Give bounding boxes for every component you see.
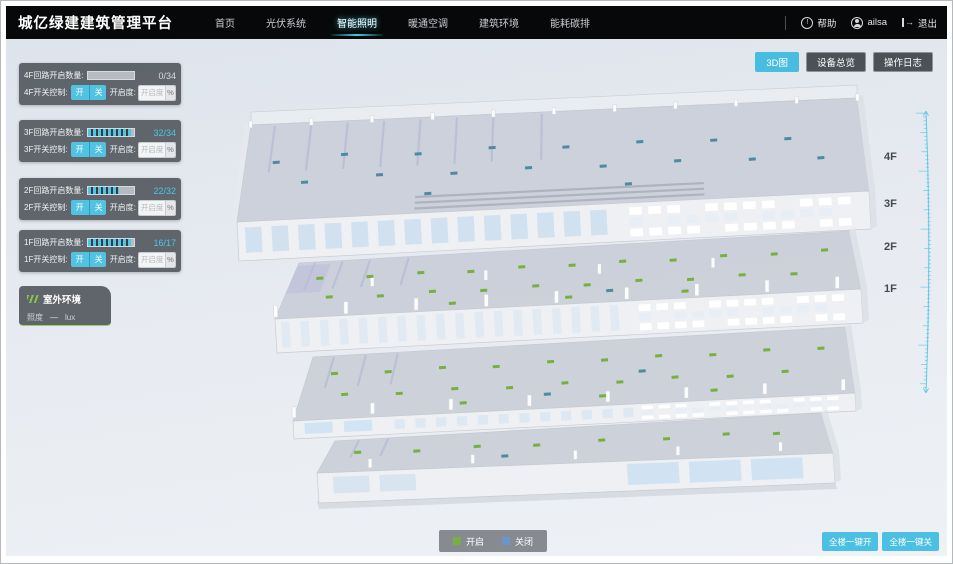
dim-input[interactable] <box>139 86 165 100</box>
dim-input-group: % <box>138 85 176 101</box>
floor-panel-2f: 2F回路开启数量: 22/32 2F开关控制: 开 关 开启度: % <box>19 178 181 220</box>
floor-label-2f: 2F <box>884 241 897 253</box>
dim-label: 开启度: <box>110 87 136 98</box>
switch-control-label: 4F开关控制: <box>24 87 68 98</box>
percent-button[interactable]: % <box>165 143 175 157</box>
off-button[interactable]: 关 <box>89 252 106 267</box>
app-title: 城亿绿建建筑管理平台 <box>18 12 173 33</box>
divider <box>785 16 786 30</box>
nav-item-lighting[interactable]: 智能照明 <box>335 11 379 34</box>
floor-label-1f: 1F <box>884 283 897 295</box>
percent-button[interactable]: % <box>165 201 175 215</box>
floor-label-4f: 4F <box>884 151 897 163</box>
dim-input[interactable] <box>139 253 165 267</box>
switch-control-label: 2F开关控制: <box>24 202 68 213</box>
switch-control-label: 3F开关控制: <box>24 144 68 155</box>
circuit-count-label: 2F回路开启数量: <box>24 185 84 196</box>
percent-button[interactable]: % <box>165 86 175 100</box>
nav-item-env[interactable]: 建筑环境 <box>477 11 521 34</box>
help-label: 帮助 <box>817 16 836 30</box>
operation-log-button[interactable]: 操作日志 <box>873 52 933 72</box>
nav-item-carbon[interactable]: 能耗碳排 <box>548 11 592 34</box>
circuit-count-label: 1F回路开启数量: <box>24 237 84 248</box>
dim-input-group: % <box>138 142 176 158</box>
circuit-progress-bar <box>87 71 135 80</box>
zoom-scale-ruler[interactable] <box>915 107 937 397</box>
legend-on-swatch <box>453 537 461 545</box>
floor-label-3f: 3F <box>884 198 897 210</box>
dim-input[interactable] <box>139 201 165 215</box>
illuminance-unit: lux <box>65 313 75 322</box>
view-toolbar: 3D图 设备总览 操作日志 <box>755 52 933 72</box>
app-window: 城亿绿建建筑管理平台 首页 光伏系统 智能照明 暖通空调 建筑环境 能耗碳排 !… <box>0 0 953 564</box>
outdoor-env-icon <box>27 295 39 303</box>
floor-panel-3f: 3F回路开启数量: 32/34 3F开关控制: 开 关 开启度: % <box>19 120 181 162</box>
all-off-button[interactable]: 全楼一键关 <box>882 532 939 551</box>
dim-label: 开启度: <box>110 202 136 213</box>
on-button[interactable]: 开 <box>71 252 89 267</box>
light-state-legend: 开启 关闭 <box>439 530 547 552</box>
logout-button[interactable]: → 退出 <box>902 16 937 30</box>
circuit-count-label: 4F回路开启数量: <box>24 70 84 81</box>
legend-off-label: 关闭 <box>515 535 533 548</box>
off-button[interactable]: 关 <box>89 85 106 100</box>
off-button[interactable]: 关 <box>89 200 106 215</box>
outdoor-env-title: 室外环境 <box>43 292 81 306</box>
help-icon: ! <box>801 17 813 29</box>
circuit-progress-bar <box>87 128 135 137</box>
circuit-count-label: 3F回路开启数量: <box>24 127 84 138</box>
circuit-progress-bar <box>87 186 135 195</box>
illuminance-label: 照度 <box>27 312 43 323</box>
username: ailsa <box>867 17 887 28</box>
illuminance-value: — <box>50 313 58 322</box>
percent-button[interactable]: % <box>165 253 175 267</box>
switch-group: 开 关 <box>71 142 106 157</box>
building-3d-view[interactable] <box>6 39 949 558</box>
on-button[interactable]: 开 <box>71 142 89 157</box>
on-button[interactable]: 开 <box>71 85 89 100</box>
dim-input[interactable] <box>139 143 165 157</box>
logout-label: 退出 <box>918 16 937 30</box>
floor-panel-4f: 4F回路开启数量: 0/34 4F开关控制: 开 关 开启度: % <box>19 63 181 105</box>
logout-icon: → <box>902 18 914 27</box>
user-icon <box>851 17 863 29</box>
user-menu[interactable]: ailsa <box>851 17 887 29</box>
circuit-count-value: 0/34 <box>158 71 176 81</box>
outdoor-env-panel: 室外环境 照度 — lux <box>19 286 111 326</box>
user-area: ! 帮助 ailsa → 退出 <box>785 16 937 30</box>
switch-group: 开 关 <box>71 252 106 267</box>
dim-label: 开启度: <box>110 144 136 155</box>
legend-on-label: 开启 <box>466 535 484 548</box>
nav-item-hvac[interactable]: 暖通空调 <box>406 11 450 34</box>
device-overview-button[interactable]: 设备总览 <box>806 52 866 72</box>
floor-panel-1f: 1F回路开启数量: 16/17 1F开关控制: 开 关 开启度: % <box>19 230 181 272</box>
off-button[interactable]: 关 <box>89 142 106 157</box>
top-bar: 城亿绿建建筑管理平台 首页 光伏系统 智能照明 暖通空调 建筑环境 能耗碳排 !… <box>6 6 947 39</box>
on-button[interactable]: 开 <box>71 200 89 215</box>
dim-label: 开启度: <box>110 254 136 265</box>
switch-group: 开 关 <box>71 200 106 215</box>
all-on-button[interactable]: 全楼一键开 <box>822 532 879 551</box>
legend-off-swatch <box>502 537 510 545</box>
circuit-count-value: 16/17 <box>153 238 176 248</box>
nav-item-pv[interactable]: 光伏系统 <box>264 11 308 34</box>
bulk-controls: 全楼一键开 全楼一键关 <box>822 532 939 551</box>
dim-input-group: % <box>138 200 176 216</box>
main-nav: 首页 光伏系统 智能照明 暖通空调 建筑环境 能耗碳排 <box>213 11 592 34</box>
circuit-progress-bar <box>87 238 135 247</box>
view-3d-button[interactable]: 3D图 <box>755 52 799 72</box>
circuit-count-value: 32/34 <box>153 128 176 138</box>
circuit-count-value: 22/32 <box>153 186 176 196</box>
nav-item-home[interactable]: 首页 <box>213 11 237 34</box>
switch-group: 开 关 <box>71 85 106 100</box>
dim-input-group: % <box>138 252 176 268</box>
main-stage: 4F回路开启数量: 0/34 4F开关控制: 开 关 开启度: % 3F回路开启… <box>6 39 947 556</box>
help-button[interactable]: ! 帮助 <box>801 16 836 30</box>
switch-control-label: 1F开关控制: <box>24 254 68 265</box>
